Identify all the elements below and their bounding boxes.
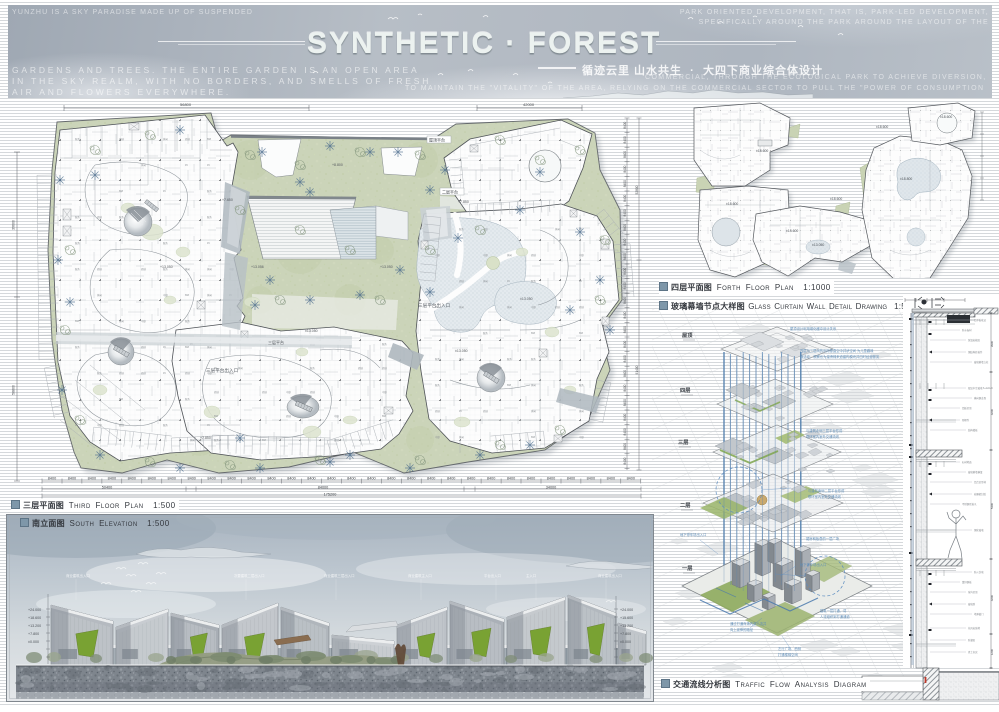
svg-text:三层平台出入口: 三层平台出入口: [206, 367, 239, 374]
svg-text:服务: 服务: [163, 241, 168, 245]
svg-text:服务: 服务: [75, 267, 80, 271]
svg-text:服务: 服务: [459, 227, 464, 231]
svg-text:商铺: 商铺: [141, 267, 146, 271]
svg-text:56800: 56800: [180, 102, 192, 107]
svg-text:服务: 服务: [531, 279, 536, 283]
svg-text:+24.000: +24.000: [620, 608, 633, 612]
svg-text:58800: 58800: [12, 385, 16, 395]
svg-text:1200: 1200: [990, 648, 994, 655]
svg-text:86#: 86#: [207, 138, 212, 141]
svg-text:休闲: 休闲: [190, 438, 195, 442]
svg-text:±13.050: ±13.050: [455, 349, 468, 353]
svg-text:中庭: 中庭: [286, 390, 291, 394]
svg-text:预埋件: 预埋件: [962, 418, 970, 422]
svg-text:8400: 8400: [623, 151, 627, 158]
svg-text:8400: 8400: [327, 477, 335, 481]
svg-text:±18.600: ±18.600: [756, 149, 768, 153]
svg-text:商铺: 商铺: [214, 390, 219, 394]
svg-text:175200: 175200: [324, 493, 337, 497]
svg-text:商业建筑三层出入口: 商业建筑三层出入口: [324, 573, 355, 578]
svg-text:+18.600: +18.600: [28, 616, 41, 620]
svg-text:±0.000: ±0.000: [620, 640, 631, 644]
svg-text:8400: 8400: [623, 209, 627, 216]
svg-text:中庭: 中庭: [531, 305, 536, 309]
svg-text:屋顶设计利用绿化缓冲设计关系: 屋顶设计利用绿化缓冲设计关系: [790, 326, 837, 331]
svg-text:主入口: 主入口: [526, 573, 536, 578]
svg-text:屋顶: 屋顶: [682, 331, 693, 339]
svg-text:50400: 50400: [102, 486, 113, 490]
svg-text:商业建筑出入口: 商业建筑出入口: [598, 573, 622, 578]
svg-text:8400: 8400: [247, 477, 255, 481]
svg-text:±18.600: ±18.600: [940, 115, 952, 119]
svg-text:地下停车场出入口: 地下停车场出入口: [800, 562, 826, 567]
svg-text:86#: 86#: [75, 320, 80, 323]
svg-text:服务: 服务: [207, 189, 212, 193]
svg-text:三层平台: 三层平台: [268, 339, 284, 345]
svg-text:8400: 8400: [623, 253, 627, 260]
svg-text:中庭: 中庭: [141, 319, 146, 323]
svg-text:8400: 8400: [623, 311, 627, 318]
svg-text:玻璃幕墙立柱: 玻璃幕墙立柱: [974, 360, 989, 364]
svg-text:商铺: 商铺: [483, 409, 488, 413]
svg-text:中庭: 中庭: [435, 253, 440, 257]
svg-text:±0.000: ±0.000: [28, 640, 39, 644]
svg-text:+7.850: +7.850: [200, 436, 211, 440]
svg-text:8400: 8400: [407, 477, 415, 481]
svg-text:双层中空玻璃 6+12A+6: 双层中空玻璃 6+12A+6: [968, 386, 993, 390]
svg-text:服务: 服务: [483, 331, 488, 335]
svg-text:服务: 服务: [75, 345, 80, 349]
svg-text:8400: 8400: [623, 428, 627, 435]
svg-text:商铺: 商铺: [459, 279, 464, 283]
svg-text:+8.800: +8.800: [332, 163, 343, 167]
svg-text:商铺: 商铺: [286, 414, 291, 418]
svg-text:保温岩棉层: 保温岩棉层: [968, 338, 981, 342]
svg-text:8400: 8400: [627, 477, 635, 481]
svg-text:服务: 服务: [579, 383, 584, 387]
svg-text:84000: 84000: [318, 486, 329, 490]
svg-text:横向钢龙骨: 横向钢龙骨: [974, 396, 987, 400]
svg-text:8400: 8400: [623, 370, 627, 377]
svg-text:通过打通商场内部人流并: 通过打通商场内部人流并: [730, 621, 767, 626]
svg-text:中庭: 中庭: [435, 435, 440, 439]
svg-text:商铺: 商铺: [119, 423, 124, 427]
svg-text:商铺: 商铺: [262, 390, 267, 394]
svg-text:52800: 52800: [635, 185, 639, 194]
svg-text:±13.050: ±13.050: [812, 243, 824, 247]
svg-text:平台出入口: 平台出入口: [484, 573, 501, 578]
svg-text:服务: 服务: [97, 371, 102, 375]
svg-text:休闲: 休闲: [555, 227, 560, 231]
svg-text:服务: 服务: [531, 357, 536, 361]
svg-text:三层平台出入口: 三层平台出入口: [418, 302, 451, 309]
svg-text:休闲: 休闲: [207, 293, 212, 297]
svg-text:86#: 86#: [185, 346, 190, 349]
svg-text:8400: 8400: [623, 443, 627, 450]
svg-text:休闲: 休闲: [238, 366, 243, 370]
svg-text:8400: 8400: [447, 477, 455, 481]
svg-text:+7.800: +7.800: [28, 632, 39, 636]
svg-text:+7.650: +7.650: [222, 198, 233, 202]
svg-text:服务: 服务: [435, 357, 440, 361]
svg-text:休闲: 休闲: [119, 319, 124, 323]
svg-text:8400: 8400: [623, 341, 627, 348]
svg-text:联环室内室外交通流线: 联环室内室外交通流线: [808, 494, 842, 499]
svg-text:+13.056: +13.056: [251, 265, 264, 269]
svg-text:二层: 二层: [680, 501, 690, 509]
svg-text:服务: 服务: [207, 215, 212, 219]
svg-text:三层: 三层: [678, 438, 688, 446]
svg-text:8400: 8400: [567, 477, 575, 481]
svg-text:硅酮密封胶: 硅酮密封胶: [974, 492, 987, 496]
svg-text:休闲: 休闲: [507, 253, 512, 257]
svg-text:±18.800: ±18.800: [900, 177, 912, 181]
svg-text:四层: 四层: [680, 386, 690, 394]
svg-text:+13.200: +13.200: [620, 624, 633, 628]
svg-text:±13.600: ±13.600: [786, 229, 798, 233]
svg-text:商铺: 商铺: [185, 137, 190, 141]
svg-text:休闲: 休闲: [579, 409, 584, 413]
svg-text:结构楼板: 结构楼板: [968, 428, 978, 432]
svg-text:8400: 8400: [587, 477, 595, 481]
svg-text:商铺: 商铺: [141, 345, 146, 349]
svg-text:8400: 8400: [207, 477, 215, 481]
svg-text:地下停车场出入口: 地下停车场出入口: [680, 532, 706, 537]
svg-text:86#: 86#: [119, 398, 124, 401]
svg-text:8400: 8400: [48, 477, 56, 481]
svg-text:休闲: 休闲: [459, 305, 464, 309]
svg-text:±18.600: ±18.600: [726, 202, 738, 206]
svg-text:8400: 8400: [623, 122, 627, 129]
svg-text:一层: 一层: [682, 564, 692, 572]
svg-text:服务: 服务: [75, 137, 80, 141]
svg-text:8400: 8400: [68, 477, 76, 481]
svg-text:±13.050: ±13.050: [520, 297, 533, 301]
svg-text:钢结构转接件: 钢结构转接件: [968, 350, 983, 354]
svg-text:商铺: 商铺: [382, 366, 387, 370]
svg-text:86#: 86#: [531, 436, 536, 439]
svg-text:8400: 8400: [607, 477, 615, 481]
svg-text:服务: 服务: [75, 215, 80, 219]
svg-text:中庭: 中庭: [163, 293, 168, 297]
svg-text:素土夯实: 素土夯实: [968, 650, 978, 654]
svg-text:钢化玻璃: 钢化玻璃: [974, 528, 984, 532]
svg-text:4200: 4200: [990, 408, 994, 415]
svg-text:+15.600: +15.600: [620, 616, 633, 620]
svg-text:服务: 服务: [507, 357, 512, 361]
svg-text:建筑一层打通、将: 建筑一层打通、将: [820, 608, 847, 613]
svg-text:39600: 39600: [12, 220, 16, 230]
svg-text:次要建筑二层出入口: 次要建筑二层出入口: [234, 573, 265, 578]
svg-text:室内吊顶: 室内吊顶: [968, 590, 978, 594]
svg-text:8400: 8400: [88, 477, 96, 481]
svg-text:休闲: 休闲: [207, 267, 212, 271]
svg-text:8400: 8400: [267, 477, 275, 481]
svg-text:中庭: 中庭: [382, 390, 387, 394]
svg-text:商铺: 商铺: [555, 305, 560, 309]
svg-text:8400: 8400: [547, 477, 555, 481]
svg-text:防潮层: 防潮层: [968, 638, 976, 642]
svg-text:8400: 8400: [307, 477, 315, 481]
svg-text:8400: 8400: [367, 477, 375, 481]
svg-text:休闲: 休闲: [97, 293, 102, 297]
svg-text:商铺: 商铺: [435, 409, 440, 413]
svg-text:镀锌钢板: 镀锌钢板: [962, 580, 972, 584]
svg-text:商业建筑主入口: 商业建筑主入口: [408, 573, 432, 578]
svg-text:±18.600: ±18.600: [830, 197, 842, 201]
svg-text:裙房和板叠的一层广场: 裙房和板叠的一层广场: [806, 536, 840, 541]
svg-text:42000: 42000: [523, 102, 535, 107]
svg-text:8400: 8400: [128, 477, 136, 481]
svg-text:屋顶平台: 屋顶平台: [429, 137, 445, 143]
svg-text:联环室内室外交通流线: 联环室内室外交通流线: [806, 434, 840, 439]
svg-text:+13.050: +13.050: [380, 265, 393, 269]
svg-text:86#: 86#: [214, 415, 219, 418]
svg-text:8400: 8400: [347, 477, 355, 481]
svg-text:商铺: 商铺: [97, 267, 102, 271]
svg-text:石材地面: 石材地面: [962, 460, 972, 464]
svg-text:8400: 8400: [623, 326, 627, 333]
svg-text:3900: 3900: [990, 340, 994, 347]
svg-text:8400: 8400: [623, 282, 627, 289]
svg-text:商铺: 商铺: [310, 390, 315, 394]
svg-text:8400: 8400: [427, 477, 435, 481]
svg-text:防水卷材: 防水卷材: [962, 328, 972, 332]
svg-text:8400: 8400: [387, 477, 395, 481]
svg-text:服务: 服务: [119, 215, 124, 219]
svg-text:铝板吊顶: 铝板吊顶: [962, 406, 972, 410]
svg-text:与建筑南侧二层平台形成: 与建筑南侧二层平台形成: [808, 488, 845, 493]
svg-text:防火封堵: 防火封堵: [974, 570, 984, 574]
svg-text:休闲: 休闲: [507, 305, 512, 309]
svg-text:8400: 8400: [623, 457, 627, 464]
svg-text:8400: 8400: [108, 477, 116, 481]
svg-text:8400: 8400: [623, 384, 627, 391]
svg-text:8400: 8400: [623, 195, 627, 202]
svg-text:休闲: 休闲: [459, 357, 464, 361]
svg-text:服务: 服务: [214, 438, 219, 442]
svg-text:休闲: 休闲: [483, 279, 488, 283]
svg-text:±13.050: ±13.050: [305, 329, 318, 333]
svg-text:86#: 86#: [579, 332, 584, 335]
svg-text:商铺: 商铺: [531, 253, 536, 257]
svg-text:休闲: 休闲: [163, 137, 168, 141]
svg-text:铝单板收边: 铝单板收边: [974, 318, 987, 322]
svg-text:86#: 86#: [262, 439, 267, 442]
svg-text:+13.050: +13.050: [160, 265, 173, 269]
svg-text:服务: 服务: [382, 342, 387, 346]
svg-text:8400: 8400: [623, 355, 627, 362]
svg-text:8400: 8400: [148, 477, 156, 481]
svg-text:商铺: 商铺: [119, 371, 124, 375]
svg-text:商铺: 商铺: [97, 215, 102, 219]
svg-text:±18.600: ±18.600: [876, 125, 888, 129]
svg-text:8400: 8400: [623, 238, 627, 245]
svg-text:34000: 34000: [546, 486, 557, 490]
svg-text:商铺: 商铺: [185, 371, 190, 375]
svg-text:5400: 5400: [990, 502, 994, 509]
svg-text:8400: 8400: [507, 477, 515, 481]
svg-text:服务: 服务: [75, 241, 80, 245]
svg-text:商铺: 商铺: [358, 366, 363, 370]
svg-text:8400: 8400: [623, 414, 627, 421]
svg-text:商铺: 商铺: [334, 438, 339, 442]
svg-text:服务: 服务: [185, 319, 190, 323]
svg-text:8400: 8400: [623, 136, 627, 143]
svg-text:休闲: 休闲: [531, 383, 536, 387]
svg-text:人流组织到打通通道: 人流组织到打通通道: [820, 614, 850, 619]
svg-text:+7.800: +7.800: [620, 632, 631, 636]
svg-text:中庭: 中庭: [483, 253, 488, 257]
svg-text:打通楼梯空间: 打通楼梯空间: [778, 652, 798, 657]
svg-text:不锈钢驳接爪: 不锈钢驳接爪: [962, 502, 977, 506]
svg-text:8400: 8400: [527, 477, 535, 481]
svg-text:商业建筑出入口: 商业建筑出入口: [66, 573, 90, 578]
svg-text:8400: 8400: [487, 477, 495, 481]
svg-text:商铺: 商铺: [579, 305, 584, 309]
svg-text:+13.200: +13.200: [28, 624, 41, 628]
svg-text:中庭: 中庭: [97, 423, 102, 427]
svg-text:8400: 8400: [623, 180, 627, 187]
svg-text:中庭: 中庭: [579, 253, 584, 257]
svg-text:地弹簧门: 地弹簧门: [974, 612, 984, 616]
svg-text:服务: 服务: [310, 366, 315, 370]
svg-text:+24.000: +24.000: [28, 608, 41, 612]
svg-text:8400: 8400: [623, 224, 627, 231]
svg-text:8400: 8400: [227, 477, 235, 481]
svg-text:86#: 86#: [507, 384, 512, 387]
svg-text:8400: 8400: [623, 297, 627, 304]
svg-text:商铺: 商铺: [119, 137, 124, 141]
svg-text:服务: 服务: [163, 423, 168, 427]
svg-text:休闲: 休闲: [141, 163, 146, 167]
svg-text:玻璃幕墙横梁: 玻璃幕墙横梁: [968, 470, 983, 474]
svg-text:8400: 8400: [623, 268, 627, 275]
svg-text:休闲: 休闲: [459, 435, 464, 439]
svg-text:中庭: 中庭: [334, 414, 339, 418]
svg-text:玻璃肋: 玻璃肋: [968, 602, 976, 606]
svg-text:8400: 8400: [623, 399, 627, 406]
svg-text:花岗岩铺地: 花岗岩铺地: [968, 626, 981, 630]
svg-text:8400: 8400: [168, 477, 176, 481]
svg-text:中庭: 中庭: [579, 435, 584, 439]
svg-text:铝合金型材: 铝合金型材: [974, 480, 987, 484]
svg-text:+7.850: +7.850: [458, 200, 469, 204]
svg-text:服务: 服务: [185, 397, 190, 401]
svg-text:休闲: 休闲: [531, 409, 536, 413]
svg-text:91400: 91400: [635, 365, 639, 374]
svg-text:二层平台: 二层平台: [442, 189, 458, 195]
svg-text:86#: 86#: [185, 294, 190, 297]
svg-text:86#: 86#: [531, 332, 536, 335]
svg-text:86#: 86#: [382, 415, 387, 418]
svg-text:8400: 8400: [623, 165, 627, 172]
svg-text:8400: 8400: [287, 477, 295, 481]
svg-text:200: 200: [933, 296, 938, 297]
svg-text:8400: 8400: [467, 477, 475, 481]
svg-text:休闲: 休闲: [185, 267, 190, 271]
svg-text:4200: 4200: [990, 594, 994, 601]
svg-text:左行广场、西侧: 左行广场、西侧: [778, 646, 802, 651]
svg-text:86#: 86#: [119, 190, 124, 193]
svg-text:8400: 8400: [187, 477, 195, 481]
svg-text:服务: 服务: [435, 383, 440, 387]
svg-text:与建筑北侧三层平台形成: 与建筑北侧三层平台形成: [806, 428, 843, 433]
svg-text:500: 500: [914, 296, 919, 297]
svg-text:商铺: 商铺: [141, 371, 146, 375]
